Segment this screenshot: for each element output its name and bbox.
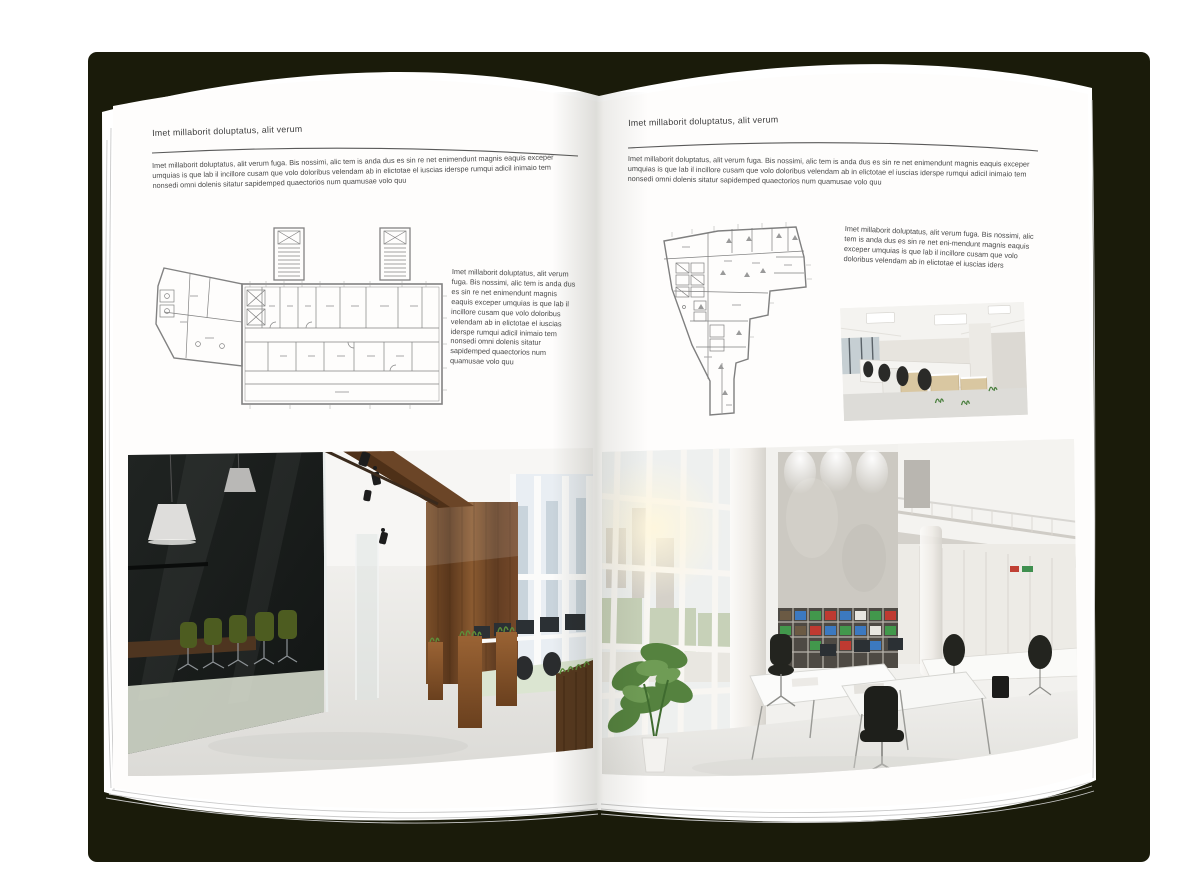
- floor-plan-right-icon: [648, 217, 840, 423]
- bookshelf: [778, 608, 898, 668]
- magazine-mockup: Imet millaborit doluptatus, alit verum I…: [0, 0, 1200, 891]
- floor-plan-left-icon: [150, 226, 448, 416]
- photo-dark-wood-office: [128, 446, 593, 780]
- photo-bright-open-office: [602, 438, 1078, 790]
- photo-white-office-workstations: [840, 302, 1028, 421]
- right-page-intro: Imet millaborit doluptatus, alit verum f…: [628, 154, 1030, 189]
- exit-sign: [1022, 566, 1033, 572]
- fire-sign: [1010, 566, 1019, 572]
- right-page-side-text: Imet millaborit doluptatus, alit verum f…: [843, 224, 1042, 272]
- left-page-side-text: Imet millaborit doluptatus, alit verum f…: [450, 267, 576, 369]
